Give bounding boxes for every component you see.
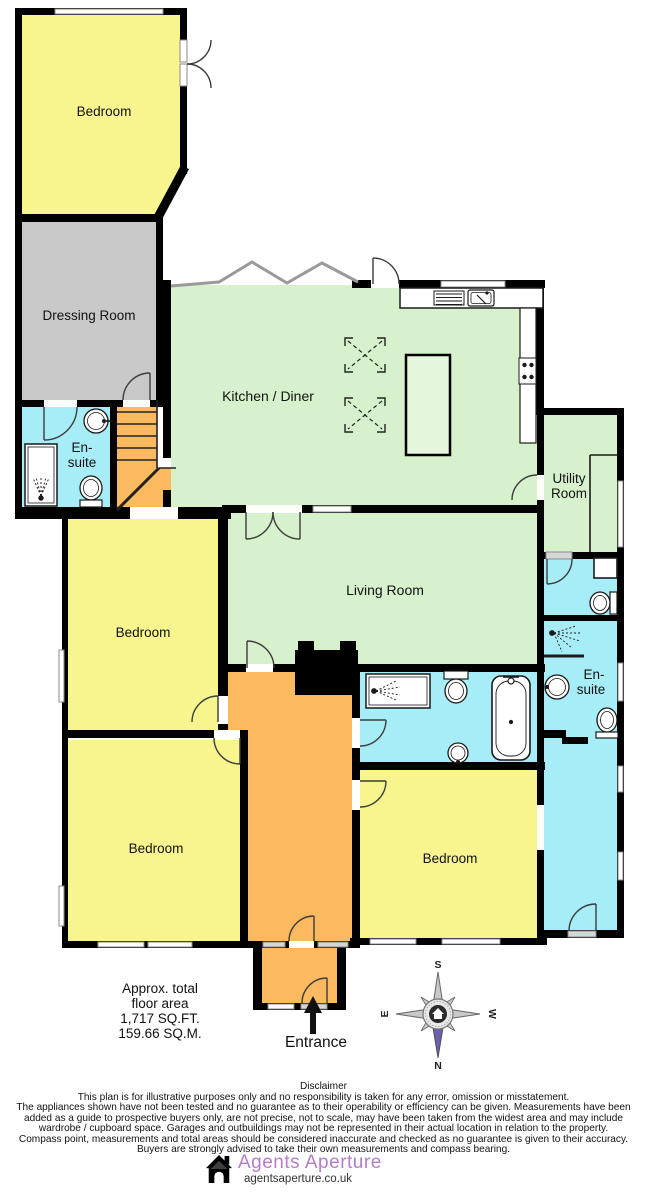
- toilet-icon: [444, 671, 468, 679]
- room-rear-corridor: [544, 740, 619, 935]
- wall: [352, 762, 545, 770]
- window: [148, 942, 192, 947]
- wall: [337, 948, 346, 1010]
- window: [618, 481, 623, 547]
- wall: [156, 214, 163, 407]
- label-utility-2: Room: [551, 486, 587, 501]
- wall: [180, 8, 187, 42]
- label-dressing-room: Dressing Room: [42, 308, 135, 323]
- label-bedroom-bottom-left: Bedroom: [129, 841, 184, 856]
- area-summary: Approx. total floor area 1,717 SQ.FT. 15…: [60, 981, 260, 1041]
- brand-url: agentsaperture.co.uk: [238, 1174, 382, 1186]
- door-threshold: [318, 942, 348, 947]
- wall: [163, 280, 171, 458]
- wall: [536, 408, 624, 415]
- label-bedroom-mid-left: Bedroom: [116, 625, 171, 640]
- label-bedroom-top-left: Bedroom: [77, 104, 132, 119]
- area-line-1: Approx. total: [60, 981, 260, 996]
- label-ensuite-right-1: En-: [583, 667, 604, 682]
- compass-west: W: [486, 1009, 498, 1019]
- window: [618, 766, 623, 792]
- window: [441, 281, 505, 287]
- wall: [562, 737, 588, 744]
- floor-plan-page: Bedroom Dressing Room En- suite Kitchen …: [0, 0, 647, 1200]
- wall: [15, 8, 22, 515]
- wall: [540, 730, 566, 738]
- window: [618, 663, 623, 701]
- window: [313, 506, 351, 512]
- window: [59, 650, 64, 702]
- wall: [15, 507, 231, 519]
- disclaimer-line: The appliances shown have not been teste…: [0, 1103, 647, 1114]
- wall: [62, 512, 68, 738]
- porch-area: [259, 948, 340, 1005]
- label-living-room: Living Room: [346, 582, 424, 598]
- door-threshold: [546, 552, 572, 559]
- compass-east: E: [379, 1010, 391, 1017]
- window: [442, 939, 500, 944]
- compass-rose: S N E W: [379, 959, 498, 1070]
- cupboard: [594, 558, 617, 578]
- label-kitchen-diner: Kitchen / Diner: [222, 388, 314, 404]
- window: [370, 939, 416, 944]
- brand-footer: Agents Aperture agentsaperture.co.uk: [205, 1152, 382, 1186]
- entrance-label: Entrance: [285, 1034, 347, 1051]
- area-line-3: 1,717 SQ.FT.: [60, 1011, 260, 1026]
- disclaimer-block: Disclaimer This plan is for illustrative…: [0, 1082, 647, 1156]
- wall: [180, 86, 187, 174]
- window: [55, 9, 163, 14]
- window: [180, 64, 187, 86]
- door-arc: [187, 40, 211, 64]
- door-threshold: [263, 942, 285, 947]
- label-ensuite-top-1: En-: [71, 440, 92, 455]
- bifold-doors: [171, 262, 358, 286]
- wall: [15, 214, 163, 222]
- area-line-4: 159.66 SQ.M.: [60, 1026, 260, 1041]
- compass-north: N: [434, 1060, 442, 1070]
- hob-icon: [519, 358, 536, 384]
- brand-name: Agents Aperture: [238, 1153, 382, 1172]
- disclaimer-line: wardrobe / cupboard space. Garages and o…: [0, 1124, 647, 1135]
- window: [180, 40, 187, 62]
- wall: [540, 615, 624, 621]
- label-ensuite-right-2: suite: [577, 682, 606, 697]
- window: [618, 852, 623, 880]
- label-utility-1: Utility: [553, 471, 586, 486]
- door-arc: [187, 64, 211, 88]
- toilet-icon: [610, 592, 617, 614]
- compass-south: S: [434, 959, 441, 971]
- door-threshold: [568, 931, 596, 937]
- window: [98, 942, 144, 947]
- area-line-2: floor area: [60, 996, 260, 1011]
- label-bedroom-bottom-right: Bedroom: [423, 851, 478, 866]
- floor-plan-svg: Bedroom Dressing Room En- suite Kitchen …: [0, 0, 647, 1070]
- wall: [253, 1003, 346, 1010]
- house-logo-icon: [205, 1152, 233, 1186]
- disclaimer-title: Disclaimer: [0, 1082, 647, 1093]
- window: [268, 1004, 294, 1009]
- wall: [110, 400, 117, 512]
- label-ensuite-top-2: suite: [68, 455, 97, 470]
- wall: [240, 733, 248, 948]
- island: [406, 355, 450, 455]
- window: [59, 886, 64, 926]
